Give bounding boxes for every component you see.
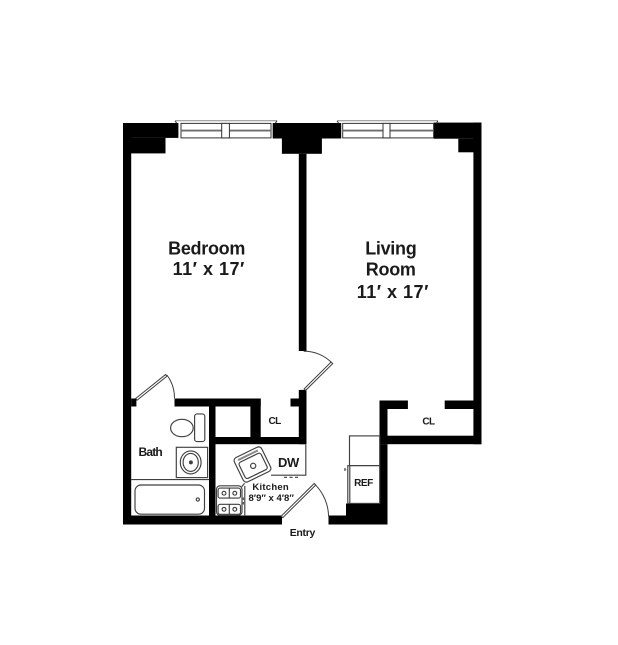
- svg-text:Bath: Bath: [138, 445, 162, 459]
- svg-text:Living: Living: [365, 239, 416, 259]
- svg-text:CL: CL: [422, 417, 435, 428]
- svg-text:CL: CL: [269, 416, 282, 427]
- svg-text:11′ x 17′: 11′ x 17′: [357, 282, 429, 302]
- svg-text:Kitchen: Kitchen: [252, 482, 289, 493]
- svg-text:Room: Room: [366, 260, 416, 280]
- svg-text:REF: REF: [354, 478, 373, 489]
- svg-text:Bedroom: Bedroom: [168, 238, 245, 258]
- svg-text:8′9″ x 4′8″: 8′9″ x 4′8″: [249, 493, 295, 504]
- svg-text:11′ x 17′: 11′ x 17′: [173, 259, 245, 279]
- svg-text:DW: DW: [278, 455, 300, 470]
- svg-text:Entry: Entry: [290, 527, 316, 539]
